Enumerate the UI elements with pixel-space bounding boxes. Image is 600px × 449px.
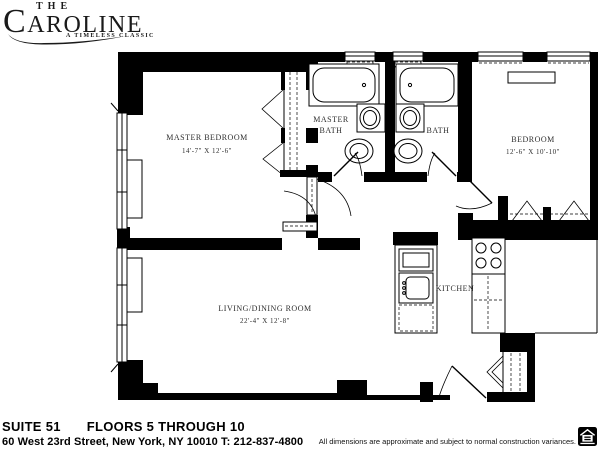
closet-bifold-door [559, 201, 589, 221]
master-bath-tub [309, 64, 379, 106]
disclaimer-text: All dimensions are approximate and subje… [319, 437, 576, 446]
footer-suite-floors: SUITE 51FLOORS 5 THROUGH 10 [2, 419, 303, 434]
entry-closet [487, 352, 520, 392]
label-master-bedroom-dims: 14'-7" X 12'-6" [182, 147, 232, 155]
closet-bifold-door [487, 356, 503, 388]
label-bedroom-dims: 12'-6" X 10'-10" [506, 148, 560, 156]
top-window-bedroom-left [478, 52, 523, 63]
kitchen-stove [472, 238, 505, 274]
closet-bifold-door [492, 361, 503, 383]
master-bath-sink [357, 104, 385, 132]
kitchen-left-counter [395, 245, 437, 333]
master-bath-toilet [345, 139, 373, 163]
bedroom-radiator [508, 72, 555, 83]
kitchen-right-counter [472, 274, 505, 333]
label-living-dining: LIVING/DINING ROOM [218, 304, 311, 313]
floor-plan-drawing: MASTER BEDROOM 14'-7" X 12'-6" MASTER BA… [0, 0, 600, 449]
label-master-bedroom: MASTER BEDROOM [166, 133, 247, 142]
entry-door [439, 366, 486, 398]
adjacent-boundary-lines [535, 240, 597, 333]
bath-toilet [394, 139, 422, 163]
label-living-dining-dims: 22'-4" X 12'-8" [240, 317, 290, 325]
suite-number: SUITE 51 [2, 419, 61, 434]
floor-plan-page: THE CAROLINE A TIMELESS CLASSIC [0, 0, 600, 449]
footer-address: 60 West 23rd Street, New York, NY 10010 … [2, 436, 303, 448]
top-window-bedroom-right [547, 52, 590, 63]
label-bath: BATH [427, 126, 450, 135]
label-bedroom: BEDROOM [511, 135, 555, 144]
label-kitchen: KITCHEN [436, 284, 475, 293]
master-bedroom-closet [262, 70, 306, 175]
floors-range: FLOORS 5 THROUGH 10 [87, 419, 245, 434]
bath-sink [396, 104, 424, 132]
label-master-bath: MASTER [313, 115, 349, 124]
equal-housing-opportunity-icon [578, 427, 597, 446]
closet-bifold-door [512, 201, 542, 221]
bath-door [428, 152, 456, 176]
left-window-living-room [111, 248, 142, 372]
left-window-master-bedroom [111, 103, 142, 229]
label-master-bath-2: BATH [320, 126, 343, 135]
footer: SUITE 51FLOORS 5 THROUGH 10 60 West 23rd… [2, 419, 303, 448]
bath-tub [396, 64, 458, 106]
closet-bifold-door [262, 90, 283, 128]
